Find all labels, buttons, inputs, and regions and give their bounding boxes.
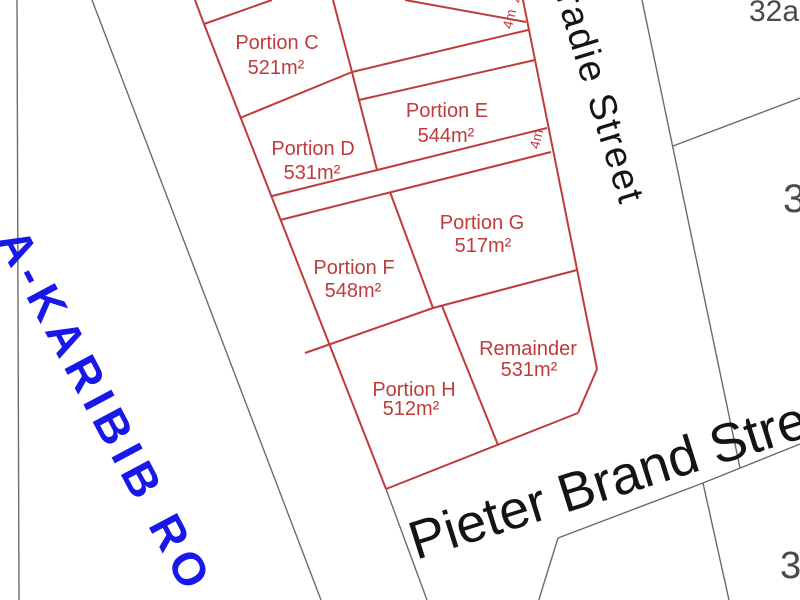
street-label-radie: radie Street <box>547 0 652 209</box>
cadastral-map: Portion C 521m² Portion D 531m² Portion … <box>0 0 800 600</box>
portion-h-remainder-divider <box>442 306 498 445</box>
dimension-4m-walkway2: 4m <box>526 128 546 151</box>
parcel-label-portion-g: Portion G <box>440 212 524 234</box>
remainder-corner-chamfer <box>578 369 597 413</box>
radie-street-east-edge-line <box>642 0 740 468</box>
parcel-area-remainder: 531m² <box>501 359 558 381</box>
neighbor-number-east-3: 3 <box>783 177 800 221</box>
east-parcel-divider-line <box>673 98 800 146</box>
parcel-area-portion-f: 548m² <box>325 280 382 302</box>
parcel-label-portion-d: Portion D <box>271 138 354 160</box>
neighbor-number-32a: 32a <box>749 0 799 28</box>
survey-plan-drawing: Portion C 521m² Portion D 531m² Portion … <box>0 0 800 600</box>
parcel-label-portion-f: Portion F <box>313 257 394 279</box>
southeast-block-divider-line <box>703 483 729 600</box>
portion-f-g-divider <box>390 192 433 308</box>
parcel-label-portion-e: Portion E <box>406 100 488 122</box>
portion-c-top-boundary <box>204 0 272 24</box>
dimension-4m-top-clipped: 4m <box>508 0 528 4</box>
street-label-pieter-brand: Pieter Brand Street <box>402 376 800 571</box>
parcel-area-portion-c: 521m² <box>248 57 305 79</box>
portion-c-east-divider <box>333 0 352 72</box>
parcel-area-portion-h: 512m² <box>383 398 440 420</box>
parcel-label-portion-c: Portion C <box>235 32 318 54</box>
road-east-edge-line <box>92 0 321 600</box>
neighbor-number-southeast-3: 3 <box>780 545 800 587</box>
dimension-4m-walkway1: 4m <box>499 8 519 31</box>
walkway1-north-line <box>352 30 528 72</box>
parcel-label-remainder: Remainder <box>479 338 577 360</box>
parcel-area-portion-g: 517m² <box>455 235 512 257</box>
road-label-karibib: A-KARIBIB RO <box>0 220 224 600</box>
parcel-area-portion-d: 531m² <box>284 162 341 184</box>
southeast-block-chamfer-line <box>539 538 558 600</box>
portion-d-e-divider <box>359 100 377 170</box>
parcel-area-portion-e: 544m² <box>418 125 475 147</box>
